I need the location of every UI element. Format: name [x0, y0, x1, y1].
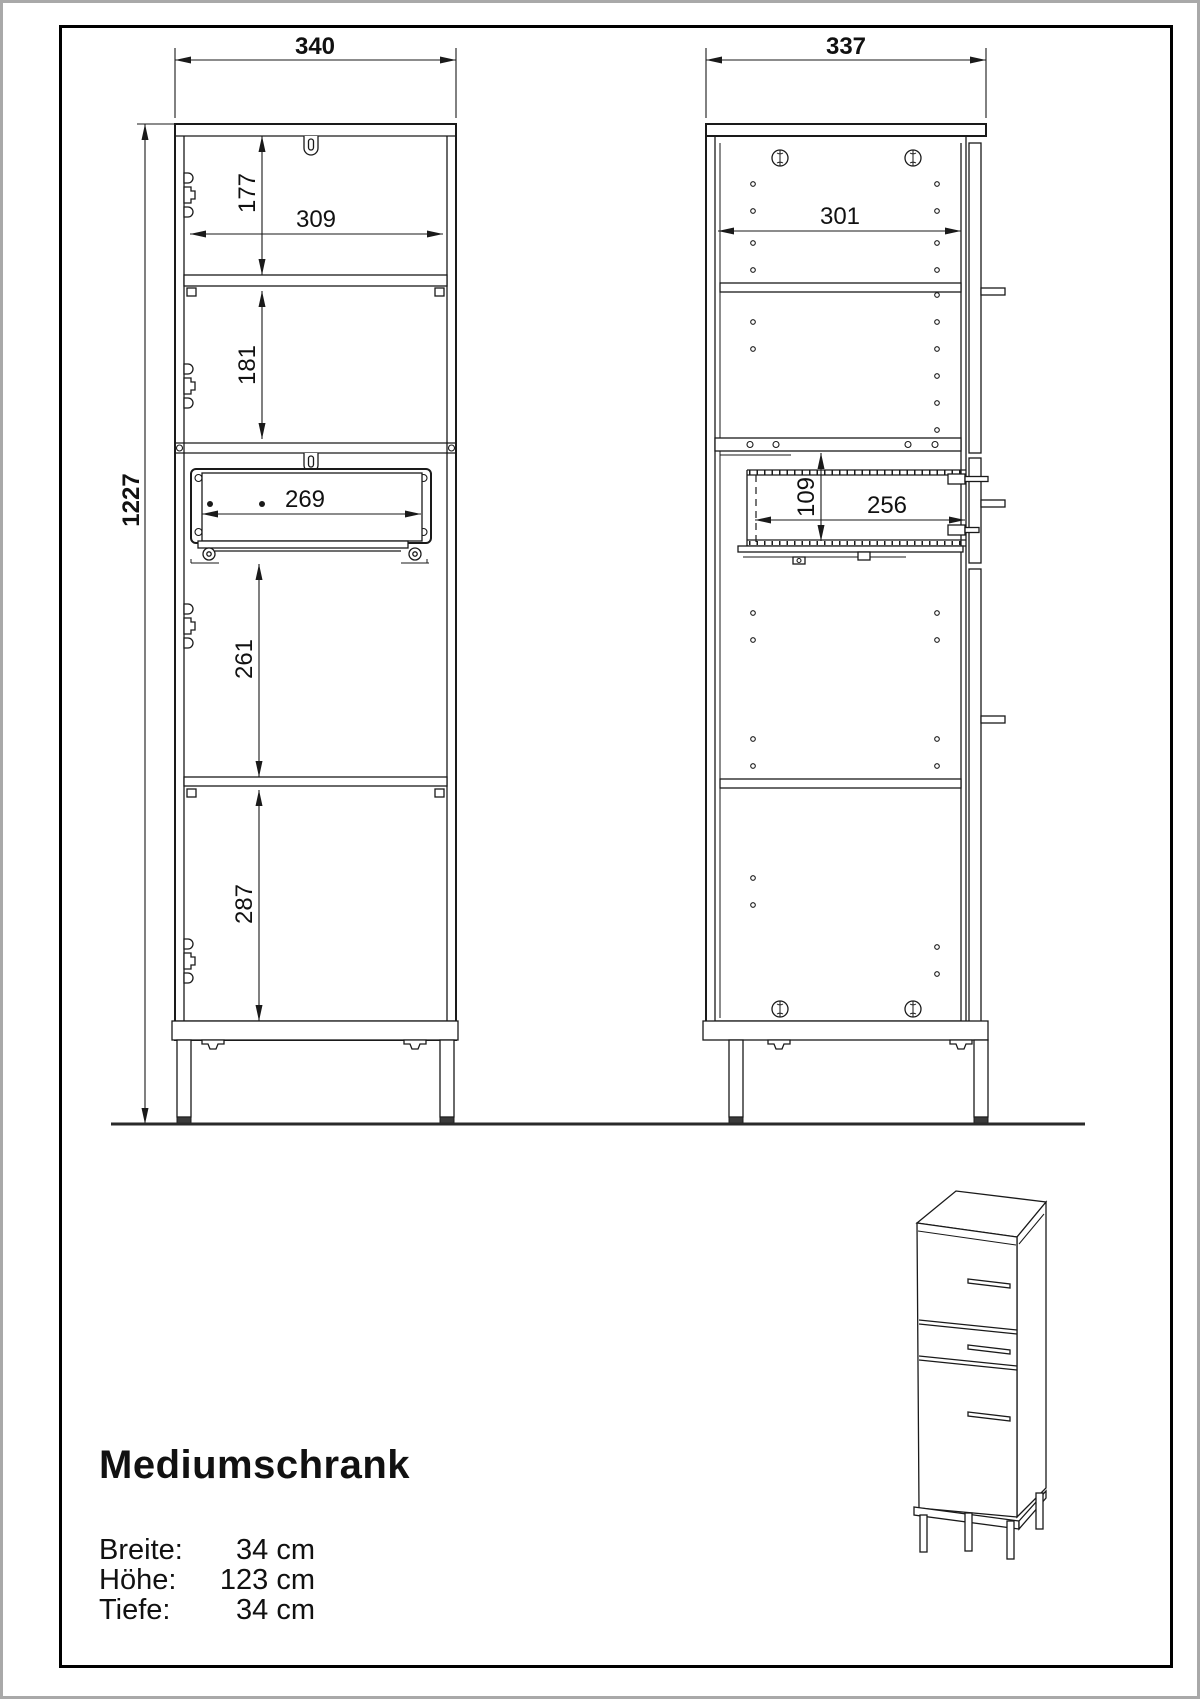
- hinge-icon: [184, 939, 195, 983]
- dim-label-drawer-width: 269: [285, 486, 325, 513]
- hinge-icon: [184, 364, 195, 408]
- product-title: Mediumschrank: [99, 1443, 410, 1487]
- dim-label-inner-width: 309: [296, 206, 336, 233]
- screw-icon: [772, 1001, 788, 1017]
- drawer-roller-icon: [203, 548, 215, 560]
- dim-label-height: 1227: [118, 473, 145, 526]
- handle-knob: [981, 716, 1005, 723]
- dim-label-drawer-height: 109: [793, 477, 820, 517]
- isometric-view: [914, 1191, 1046, 1559]
- spec-label: Tiefe:: [99, 1595, 217, 1625]
- handle-knob: [981, 500, 1005, 507]
- dim-label-inner-depth: 301: [820, 203, 860, 230]
- hinge-icon: [184, 604, 195, 648]
- spec-value: 34 cm: [217, 1535, 315, 1565]
- shelf-pin-holes: [751, 182, 940, 977]
- adjustable-foot: [950, 1040, 972, 1049]
- spec-row-tiefe: Tiefe: 34 cm: [99, 1595, 410, 1625]
- adjustable-foot: [202, 1040, 224, 1049]
- side-view-screws: [772, 150, 921, 1017]
- dim-height-1227: 1227: [118, 124, 177, 1124]
- dim-width-340: 340: [175, 33, 456, 118]
- front-view: 340 1227 177 309 181 269: [118, 33, 458, 1124]
- wall-bracket-icon: [304, 136, 318, 155]
- handle-knob: [981, 288, 1005, 295]
- side-view-carcass: [703, 124, 1005, 1124]
- dim-depth-337: 337: [706, 33, 986, 118]
- page: 340 1227 177 309 181 269: [0, 0, 1200, 1699]
- side-view: 337 301 109 256: [703, 33, 1005, 1124]
- spec-value: 34 cm: [217, 1595, 315, 1625]
- dim-drawer-height-109: 109: [793, 453, 825, 541]
- screw-icon: [905, 1001, 921, 1017]
- spec-list: Breite: 34 cm Höhe: 123 cm Tiefe: 34 cm: [99, 1535, 410, 1625]
- dim-label-drawer-depth: 256: [867, 492, 907, 519]
- spec-label: Höhe:: [99, 1565, 217, 1595]
- screw-icon: [772, 150, 788, 166]
- dim-label-width: 340: [295, 33, 335, 60]
- hinge-icon: [184, 173, 195, 217]
- spec-label: Breite:: [99, 1535, 217, 1565]
- spec-row-breite: Breite: 34 cm: [99, 1535, 410, 1565]
- dim-label-top-section: 177: [234, 173, 261, 213]
- dim-label-second-section: 181: [234, 345, 261, 385]
- dim-label-third-section: 261: [231, 639, 258, 679]
- dim-drawer-depth-256: 256: [755, 492, 965, 524]
- drawer-roller-icon: [409, 548, 421, 560]
- screw-icon: [905, 150, 921, 166]
- spec-row-hoehe: Höhe: 123 cm: [99, 1565, 410, 1595]
- info-block: Mediumschrank Breite: 34 cm Höhe: 123 cm…: [99, 1443, 410, 1625]
- adjustable-foot: [404, 1040, 426, 1049]
- dim-label-bottom-section: 287: [231, 884, 258, 924]
- front-view-carcass: [172, 124, 458, 1124]
- dim-label-depth: 337: [826, 33, 866, 60]
- dim-inner-depth-301: 301: [718, 203, 961, 235]
- spec-value: 123 cm: [217, 1565, 315, 1595]
- adjustable-foot: [768, 1040, 790, 1049]
